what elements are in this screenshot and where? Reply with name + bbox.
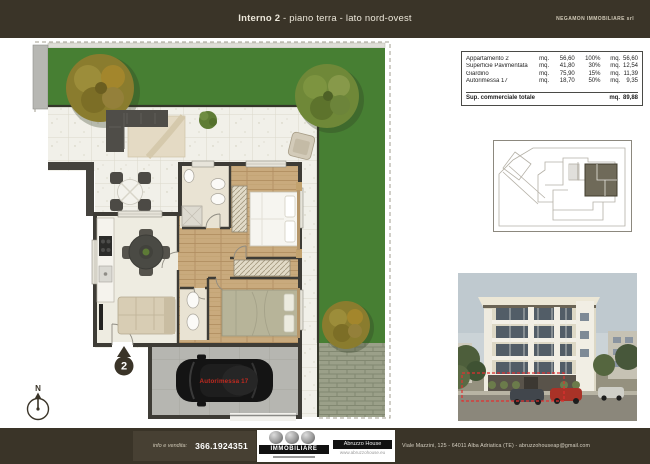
row-label: Superficie Pavimentata: [466, 63, 539, 70]
potted-plant: [199, 111, 217, 129]
header-band: Interno 2 - piano terra - lato nord-oves…: [0, 0, 650, 38]
site-plan-highlight: [585, 164, 617, 196]
percent: 50%: [575, 78, 601, 85]
unit: mq.: [539, 63, 553, 70]
phone-number: 366.1924351: [195, 441, 248, 451]
low-wall: [86, 162, 94, 216]
brand-website: www.abruzzohouse.eu: [333, 450, 392, 455]
row-label: Autorimessa 17: [466, 78, 539, 85]
logo-sphere-icon: [269, 431, 283, 444]
logo-wordmark: IMMOBILIARE: [259, 445, 329, 454]
total-label: Sup. commerciale totale: [466, 95, 600, 102]
percent: 100%: [575, 56, 601, 63]
unit: mq.: [600, 56, 620, 63]
unit: mq.: [539, 78, 553, 85]
tv: [99, 304, 103, 330]
value: 56,60: [553, 56, 575, 63]
building-photo: [458, 273, 637, 421]
brochure-page: Interno 2 - piano terra - lato nord-oves…: [0, 0, 650, 464]
fence-top: [48, 43, 385, 48]
floor-plan: Autorimessa 17 2 N: [0, 38, 460, 428]
wardrobe: [234, 260, 290, 276]
unit: mq.: [600, 78, 620, 85]
paver-path: [318, 343, 385, 417]
unit: mq.: [600, 95, 620, 102]
page-title-unit: Interno 2: [238, 13, 280, 24]
table-row: Appartamento 2 mq. 56,60 100% mq. 56,60: [466, 56, 638, 63]
agency-name: NEGAMON IMMOBILIARE srl: [556, 16, 634, 22]
logo-sphere-icon: [285, 431, 299, 444]
table-row: Autorimessa 17 mq. 18,70 50% mq. 9,35: [466, 78, 638, 85]
bed-second: [222, 288, 300, 338]
table-total-row: Sup. commerciale totale mq. 89,88: [466, 92, 638, 103]
wall-left: [33, 45, 48, 109]
living-sofa: [118, 297, 175, 334]
unit: mq.: [539, 56, 553, 63]
car: Autorimessa 17: [176, 355, 273, 407]
total-value: 89,88: [620, 95, 638, 102]
garage-label: Autorimessa 17: [200, 378, 249, 385]
wardrobe: [232, 186, 247, 232]
value: 11,39: [620, 71, 638, 78]
site-key-plan: [493, 140, 632, 232]
value: 18,70: [553, 78, 575, 85]
unit: mq.: [600, 71, 620, 78]
percent: 30%: [575, 63, 601, 70]
info-label: info e vendita:: [153, 443, 187, 449]
agency-address: Viale Mazzini, 125 - 64011 Alba Adriatic…: [402, 428, 590, 464]
unit: mq.: [539, 71, 553, 78]
footer-band: info e vendita: 366.1924351 IMMOBILIARE …: [0, 428, 650, 464]
unit-number: 2: [121, 361, 127, 373]
main-building: [478, 297, 600, 391]
value: 41,80: [553, 63, 575, 70]
unit: mq.: [600, 63, 620, 70]
row-label: Giardino: [466, 71, 539, 78]
value: 56,60: [620, 56, 638, 63]
value: 12,54: [620, 63, 638, 70]
page-title-sub: - piano terra - lato nord-ovest: [280, 13, 412, 24]
contact-box: info e vendita: 366.1924351: [133, 431, 256, 461]
logo-sphere-icon: [301, 431, 315, 444]
page-title: Interno 2 - piano terra - lato nord-oves…: [0, 13, 650, 24]
agency-logo: IMMOBILIARE Abruzzo House www.abruzzohou…: [257, 430, 395, 462]
area-summary-table: Appartamento 2 mq. 56,60 100% mq. 56,60 …: [461, 51, 643, 106]
value: 75,90: [553, 71, 575, 78]
value: 9,35: [620, 78, 638, 85]
percent: 15%: [575, 71, 601, 78]
table-row: Giardino mq. 75,90 15% mq. 11,39: [466, 71, 638, 78]
north-label: N: [35, 384, 41, 393]
logo-tagline-line: [273, 456, 315, 458]
row-label: Appartamento 2: [466, 56, 539, 63]
garage-door: [230, 413, 296, 421]
brand-name: Abruzzo House: [333, 440, 392, 449]
table-row: Superficie Pavimentata mq. 41,80 30% mq.…: [466, 63, 638, 70]
kitchen-counter: [97, 218, 114, 302]
